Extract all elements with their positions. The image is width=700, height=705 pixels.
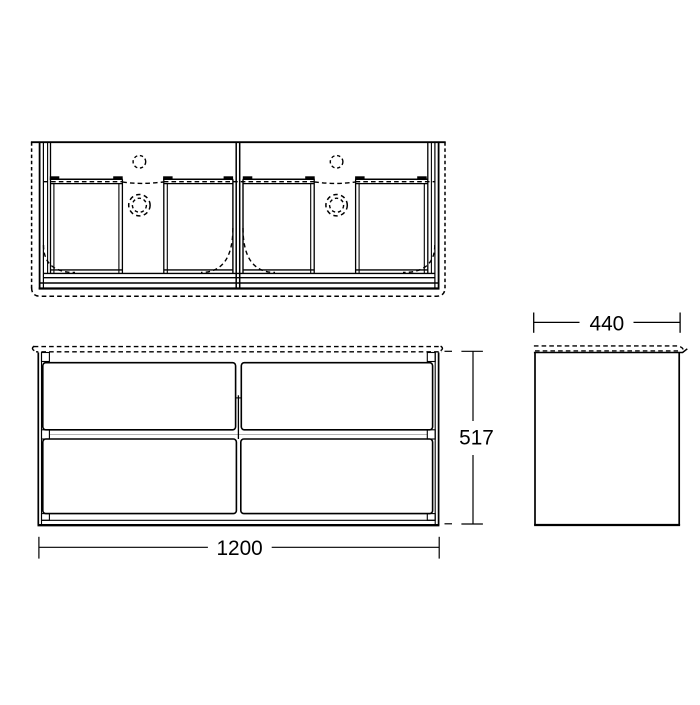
svg-text:1200: 1200 — [216, 537, 262, 560]
svg-text:517: 517 — [459, 427, 494, 450]
svg-text:440: 440 — [590, 312, 625, 335]
